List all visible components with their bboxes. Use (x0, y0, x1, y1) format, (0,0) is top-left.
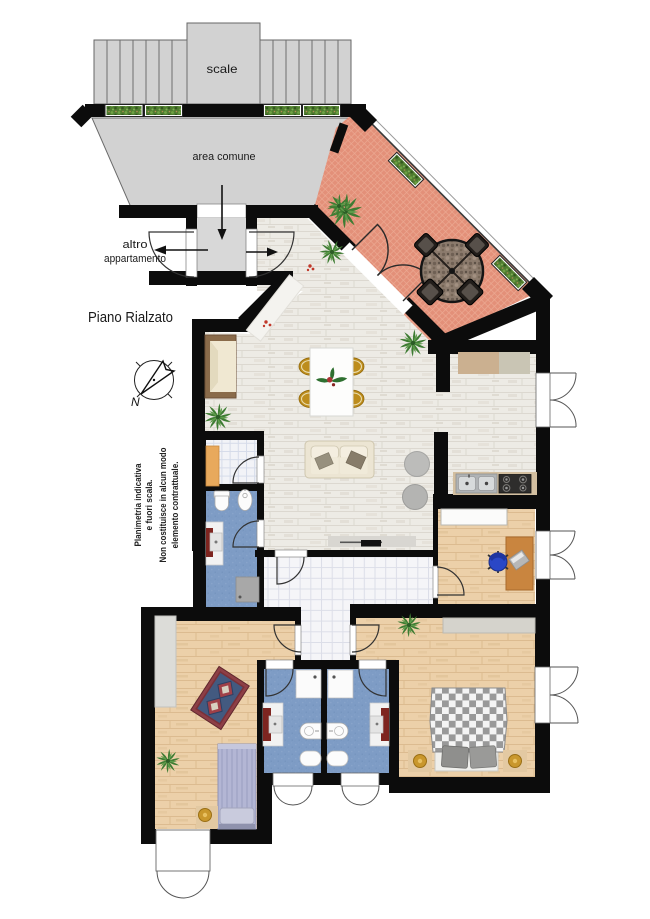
svg-text:appartamento: appartamento (104, 253, 166, 265)
svg-text:Planimetria indicativa: Planimetria indicativa (133, 463, 144, 547)
svg-text:Non costituisce in alcun modo: Non costituisce in alcun modo (158, 447, 169, 562)
svg-text:scale: scale (207, 62, 238, 76)
svg-text:area comune: area comune (193, 151, 256, 163)
svg-text:elemento contrattuale.: elemento contrattuale. (170, 462, 181, 549)
svg-text:altro: altro (123, 239, 148, 251)
svg-text:e fuori scala.: e fuori scala. (144, 480, 155, 531)
svg-text:Piano Rialzato: Piano Rialzato (88, 309, 173, 326)
svg-text:N: N (131, 395, 140, 409)
